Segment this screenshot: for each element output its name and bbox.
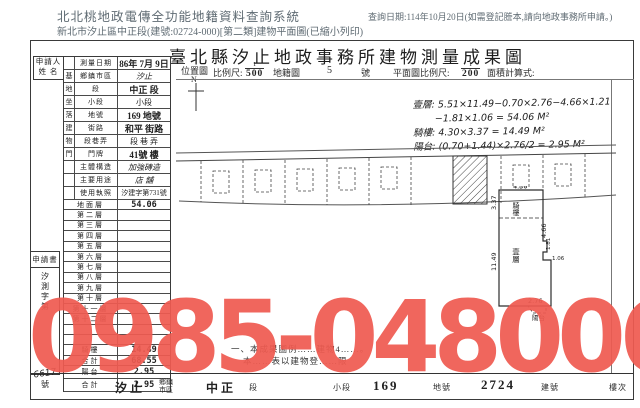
table-row: 測量日期86年 7月 9日 bbox=[64, 57, 170, 70]
svg-text:壹層: 壹層 bbox=[511, 247, 520, 264]
plan-scale-fraction: 1 200 bbox=[461, 61, 480, 79]
floor-row: 第二層 bbox=[64, 210, 170, 220]
system-subtitle: 新北市汐止區中正段(建號:02724-000)[第二類]建物平面圖(已縮小列印) bbox=[57, 23, 363, 38]
floor-row: 地面層54.06 bbox=[64, 200, 170, 210]
svg-text:1.06: 1.06 bbox=[552, 256, 565, 262]
table-row: 門門牌41號 樓 bbox=[64, 148, 170, 161]
sheet-number-suffix: 號 bbox=[361, 66, 370, 79]
table-row: 主體構造加強磚造 bbox=[64, 161, 170, 174]
floor-row: 第七層 bbox=[64, 262, 170, 272]
svg-text:1.81: 1.81 bbox=[546, 238, 552, 250]
cadastral-map-label: 地籍圖 bbox=[273, 66, 300, 79]
table-row: 落地號169 地號 bbox=[64, 109, 170, 122]
query-date: 查詢日期:114年10月20日(如需登記謄本,請向地政事務所申請。) bbox=[368, 10, 612, 23]
table-row: 地段中正 段 bbox=[64, 83, 170, 96]
scanned-survey-document-page: 北北桃地政電傳全功能地籍資料查詢系統 新北市汐止區中正段(建號:02724-00… bbox=[0, 0, 640, 408]
table-row: 建街路和平 街路 bbox=[64, 122, 170, 135]
phone-number-watermark: 0985-048006 bbox=[28, 288, 640, 387]
subject-parcel-hatched bbox=[453, 156, 487, 204]
svg-text:11.49: 11.49 bbox=[490, 252, 498, 271]
svg-text:4.30: 4.30 bbox=[513, 186, 527, 191]
table-row: 物段巷弄段 巷 弄 bbox=[64, 135, 170, 148]
svg-text:騎樓: 騎樓 bbox=[512, 201, 520, 217]
floor-row: 第五層 bbox=[64, 242, 170, 252]
floor-row: 第六層 bbox=[64, 252, 170, 262]
location-scale-fraction: 1 500 bbox=[245, 61, 264, 79]
svg-text:4.66: 4.66 bbox=[540, 224, 548, 238]
svg-text:3.37: 3.37 bbox=[490, 196, 498, 210]
north-arrow-icon bbox=[186, 83, 206, 113]
sheet-number: 5 bbox=[327, 65, 332, 76]
table-row: 坐小段小段 bbox=[64, 96, 170, 109]
floor-row: 第四層 bbox=[64, 231, 170, 241]
location-scale-label: 比例尺: bbox=[213, 66, 243, 79]
plan-scale-label: 平面圖比例尺: bbox=[393, 66, 450, 79]
table-row: 基鄉鎮市區汐止 bbox=[64, 70, 170, 83]
area-calc-label: 面積計算式: bbox=[487, 66, 535, 79]
applicant-name-box: 申請人 姓 名 bbox=[33, 56, 64, 80]
form-title: 臺北縣汐止地政事務所建物測量成果圖 bbox=[169, 43, 509, 68]
table-row: 使用執照汐建字第731號 bbox=[64, 187, 170, 200]
floor-row: 第三層 bbox=[64, 221, 170, 231]
header-divider bbox=[176, 79, 634, 80]
table-row: 主要用途店 舖 bbox=[64, 174, 170, 187]
